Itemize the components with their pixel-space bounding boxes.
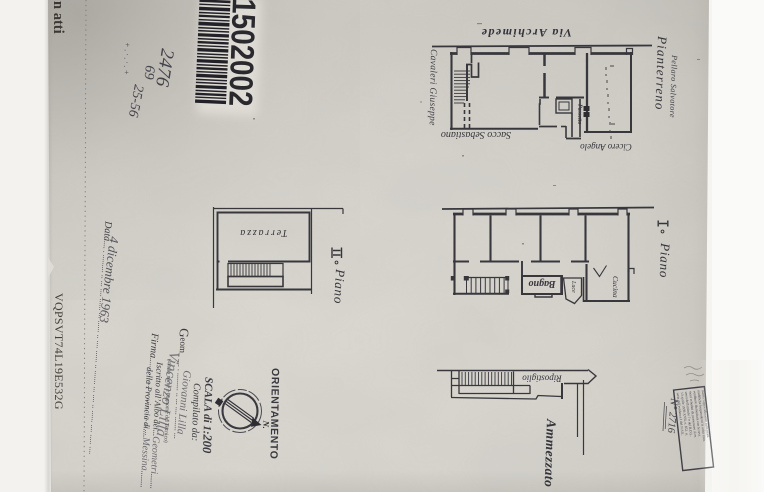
svg-text:N.: N. bbox=[261, 419, 272, 429]
svg-text:Pianterreno: Pianterreno bbox=[652, 35, 670, 111]
svg-text:Passetto: Passetto bbox=[576, 104, 582, 124]
svg-text:Luce: Luce bbox=[570, 280, 576, 293]
svg-text:n atti: n atti bbox=[50, 1, 66, 34]
svg-text:1502002: 1502002 bbox=[222, 0, 263, 107]
svg-text:+ . · . · . +: + . · . · . + bbox=[122, 42, 132, 75]
svg-text:VQPSVT74L19E532G: VQPSVT74L19E532G bbox=[52, 293, 66, 410]
svg-text:69: 69 bbox=[141, 65, 157, 80]
svg-text:Via Archimede: Via Archimede bbox=[480, 26, 571, 40]
svg-text:Piano: Piano bbox=[657, 242, 673, 279]
svg-text:Terrazza: Terrazza bbox=[238, 227, 287, 238]
svg-text:Cicero Angelo: Cicero Angelo bbox=[580, 142, 632, 152]
svg-text:Piano: Piano bbox=[331, 268, 348, 305]
svg-text:Cucina: Cucina bbox=[611, 276, 620, 298]
svg-text:Bagno: Bagno bbox=[528, 278, 556, 289]
svg-text:Cavaleri Giuseppe: Cavaleri Giuseppe bbox=[427, 49, 438, 126]
svg-text:Ammezzato: Ammezzato bbox=[542, 418, 559, 488]
svg-text:Sacco Sebastiano: Sacco Sebastiano bbox=[441, 129, 511, 140]
svg-text:ORIENTAMENTO: ORIENTAMENTO bbox=[267, 368, 281, 460]
svg-text:Ripostiglio: Ripostiglio bbox=[522, 374, 563, 384]
